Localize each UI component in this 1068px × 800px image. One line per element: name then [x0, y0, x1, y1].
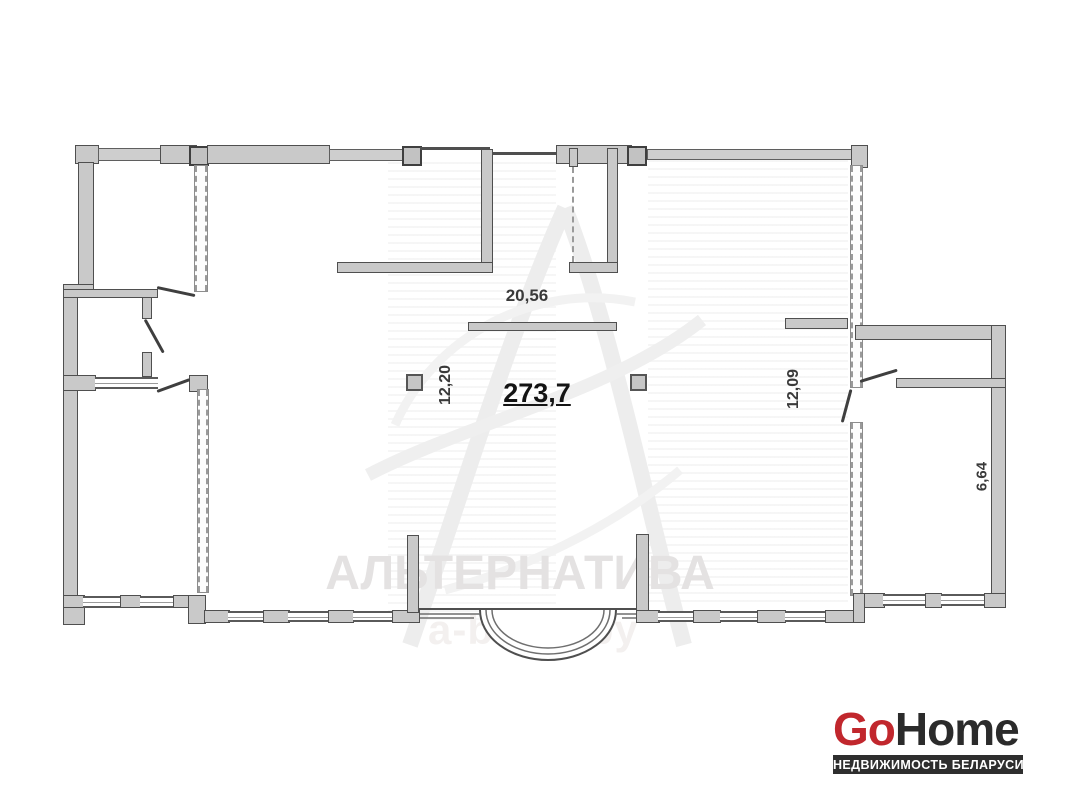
door-leaf-room2 — [144, 319, 165, 354]
wall-closet-dashed — [572, 167, 574, 262]
bay-pier-right — [636, 534, 649, 613]
wall-top-corner-right — [851, 145, 868, 168]
wall-room2-bottom-b — [95, 377, 158, 389]
window-top-1 — [98, 148, 162, 161]
wall-bottom-6 — [693, 610, 721, 623]
window-annex-1 — [883, 594, 925, 606]
gohome-logo-go: Go — [833, 703, 895, 755]
wall-annex-step — [853, 593, 865, 623]
wall-right-dashed-upper — [851, 166, 862, 387]
watermark-brand-text: АЛЬТЕРНАТИВА — [310, 546, 730, 601]
wall-bottom-2 — [263, 610, 290, 623]
wall-top-2 — [207, 145, 330, 164]
wall-left-lower — [63, 296, 78, 602]
gohome-logo-tagline: НЕДВИЖИМОСТЬ БЕЛАРУСИ — [833, 755, 1023, 774]
window-top-2 — [329, 149, 403, 161]
window-top-3 — [647, 149, 855, 160]
wall-stub-right — [785, 318, 848, 329]
wall-bottom-1 — [204, 610, 230, 623]
wall-room2-right-a — [142, 297, 152, 319]
column-top-1 — [189, 146, 209, 166]
door-leaf-room1 — [157, 286, 196, 297]
window-bottom-2 — [288, 611, 329, 622]
wall-annex-bottom-b — [925, 593, 942, 608]
wall-annex-bottom-c — [984, 593, 1006, 608]
wall-left-upper — [78, 162, 94, 288]
wall-top-3 — [556, 145, 632, 164]
dimension-bar — [468, 322, 617, 331]
wall-bottom-7 — [757, 610, 786, 623]
column-top-2 — [402, 146, 422, 166]
pillar-left — [406, 374, 423, 391]
column-top-3 — [627, 146, 647, 166]
wall-annex-divider — [896, 378, 1006, 388]
wall-closet-bottom — [569, 262, 618, 273]
opening-lintel-2 — [489, 152, 560, 155]
gohome-logo-home: Home — [895, 703, 1019, 755]
door-leaf-annex — [860, 369, 898, 383]
window-annex-2 — [941, 594, 985, 606]
wall-room2-bottom-a — [63, 375, 96, 391]
wall-right-dashed-lower — [851, 423, 862, 595]
wall-bottom-3 — [328, 610, 354, 623]
floorplan-image: АЛЬТЕРНАТИВА a-brest.by — [0, 0, 1068, 800]
wall-annex-right — [991, 325, 1006, 608]
wall-room1-right-dashed — [195, 166, 207, 291]
wall-room3-right-dashed — [198, 390, 208, 592]
bay-pier-left — [407, 535, 419, 613]
wall-room3-bottom-b — [120, 595, 141, 608]
window-bottom-3 — [353, 611, 394, 622]
dim-top-label: 20,56 — [477, 286, 577, 306]
total-area-label: 273,7 — [487, 378, 587, 409]
wall-room2-right-b — [142, 352, 152, 377]
window-room3-1 — [83, 596, 121, 608]
wall-bottom-5 — [636, 610, 660, 623]
dim-annex-label: 6,64 — [974, 442, 991, 512]
window-bottom-1 — [228, 611, 265, 622]
window-bottom-4 — [658, 611, 694, 622]
dim-left-label: 12,20 — [437, 345, 455, 425]
gohome-logo-text: GoHome — [833, 706, 1023, 753]
window-room3-2 — [140, 596, 174, 608]
window-bottom-6 — [785, 611, 826, 622]
wall-closet-right — [607, 148, 618, 273]
dim-right-label: 12,09 — [785, 349, 803, 429]
door-leaf-room2-south — [156, 378, 190, 393]
wall-lroom-horizontal — [337, 262, 493, 273]
pillar-right — [630, 374, 647, 391]
wall-lroom-vertical — [481, 149, 493, 269]
wall-closet-stub — [569, 148, 578, 167]
bay-window — [408, 604, 654, 676]
window-bottom-5 — [720, 611, 759, 622]
wall-room3-bottom-a — [63, 595, 85, 608]
gohome-logo: GoHome НЕДВИЖИМОСТЬ БЕЛАРУСИ — [833, 706, 1023, 774]
wall-annex-top — [855, 325, 1006, 340]
opening-lintel-1 — [420, 147, 490, 150]
